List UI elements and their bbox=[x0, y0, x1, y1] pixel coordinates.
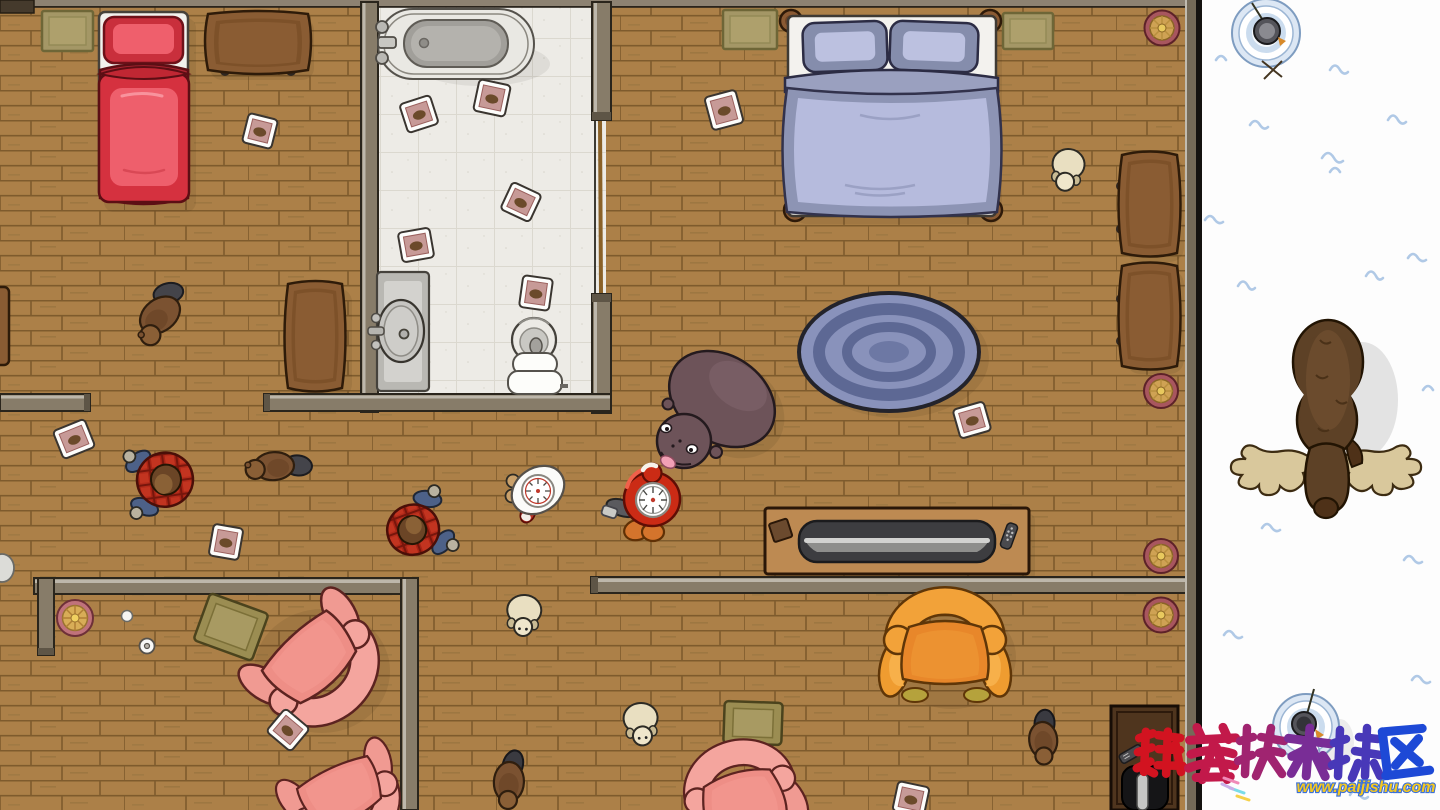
svg-text:www.paijishu.com: www.paijishu.com bbox=[1297, 779, 1436, 796]
